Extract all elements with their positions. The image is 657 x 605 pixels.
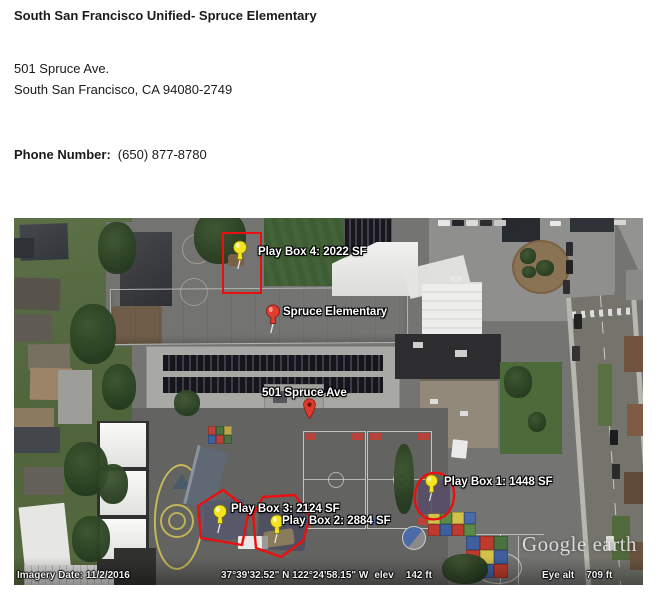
playbox4-label: Play Box 4: 2022 SF [258, 246, 367, 258]
car [563, 280, 570, 294]
tree [98, 464, 128, 504]
truck [451, 439, 468, 458]
address-line-2: South San Francisco, CA 94080-2749 [14, 82, 232, 97]
car [452, 220, 464, 226]
house-roof [14, 277, 61, 311]
court-marking [370, 433, 381, 440]
grass-strip [598, 364, 612, 426]
map-pin-icon [302, 398, 317, 420]
court-marking [305, 433, 316, 440]
white-building [422, 282, 482, 336]
dark-building [395, 334, 501, 379]
lat-lon: 37°39'32.52" N 122°24'58.15" W [221, 570, 368, 581]
car [566, 260, 573, 274]
court-circle [328, 472, 344, 488]
car [566, 242, 573, 256]
tree [528, 412, 546, 432]
car [508, 220, 520, 226]
phone-number: (650) 877-8780 [118, 147, 207, 162]
address-line-1: 501 Spruce Ave. [14, 61, 109, 76]
circle-mat [402, 526, 426, 550]
playbox2-label: Play Box 2: 2884 SF [282, 515, 391, 527]
pushpin-icon [423, 474, 440, 502]
tree [522, 266, 536, 278]
tree [504, 366, 532, 398]
car [614, 220, 626, 225]
tree [72, 516, 110, 562]
track-circle [168, 512, 186, 530]
solar-panel-strip [163, 355, 383, 371]
pushpin-icon [264, 304, 282, 334]
school-label: Spruce Elementary [283, 306, 387, 318]
roof-vent [460, 411, 468, 416]
house-roof [14, 314, 52, 342]
play-mat-grid [208, 426, 232, 444]
house-roof [624, 336, 643, 372]
house-roof [28, 344, 70, 371]
tree [536, 260, 554, 276]
car [494, 220, 506, 226]
car [550, 221, 561, 226]
phone-line: Phone Number:(650) 877-8780 [14, 147, 207, 162]
imagery-date: Imagery Date: 11/2/2016 [17, 570, 130, 581]
car [574, 314, 582, 329]
address-label: 501 Spruce Ave [262, 387, 347, 399]
elev-label: elev [374, 570, 393, 581]
document-page: South San Francisco Unified- Spruce Elem… [0, 0, 657, 605]
eye-altitude-readout: Eye alt 709 ft [542, 570, 612, 581]
car [610, 430, 618, 445]
map-status-bar: Imagery Date: 11/2/2016 37°39'32.52" N 1… [14, 557, 643, 585]
car [572, 346, 580, 361]
satellite-map-image: Play Box 4: 2022 SF Spruce Elementary 50… [14, 218, 643, 585]
tree [70, 304, 116, 364]
phone-label: Phone Number: [14, 147, 111, 162]
house-roof [14, 427, 60, 453]
car [612, 464, 620, 479]
roof-vent [413, 342, 423, 348]
house-roof [624, 472, 643, 504]
pushpin-icon [231, 240, 249, 270]
tree [174, 390, 200, 416]
tree [520, 248, 536, 264]
house-roof [14, 238, 34, 258]
house-roof [627, 404, 643, 436]
roof-vent [430, 399, 438, 404]
court-marking [418, 433, 429, 440]
coordinates-readout: 37°39'32.52" N 122°24'58.15" W elev 142 … [221, 570, 432, 581]
house-roof [570, 218, 614, 232]
document-title: South San Francisco Unified- Spruce Elem… [14, 8, 317, 23]
house-roof [24, 467, 64, 495]
google-earth-watermark: Google earth [522, 532, 637, 557]
tree [98, 222, 136, 274]
eye-alt-label: Eye alt [542, 570, 574, 581]
playbox3-label: Play Box 3: 2124 SF [231, 503, 340, 515]
elev-value: 142 ft [406, 570, 432, 581]
building-roof [58, 370, 92, 424]
court-marking [352, 433, 363, 440]
pushpin-icon [211, 504, 229, 534]
house-roof [626, 270, 643, 300]
playbox1-label: Play Box 1: 1448 SF [444, 476, 553, 488]
car [438, 220, 450, 226]
roof-vent [455, 350, 467, 357]
car [480, 220, 492, 226]
eye-alt-value: 709 ft [586, 570, 612, 581]
car [466, 220, 478, 226]
tree [102, 364, 136, 410]
